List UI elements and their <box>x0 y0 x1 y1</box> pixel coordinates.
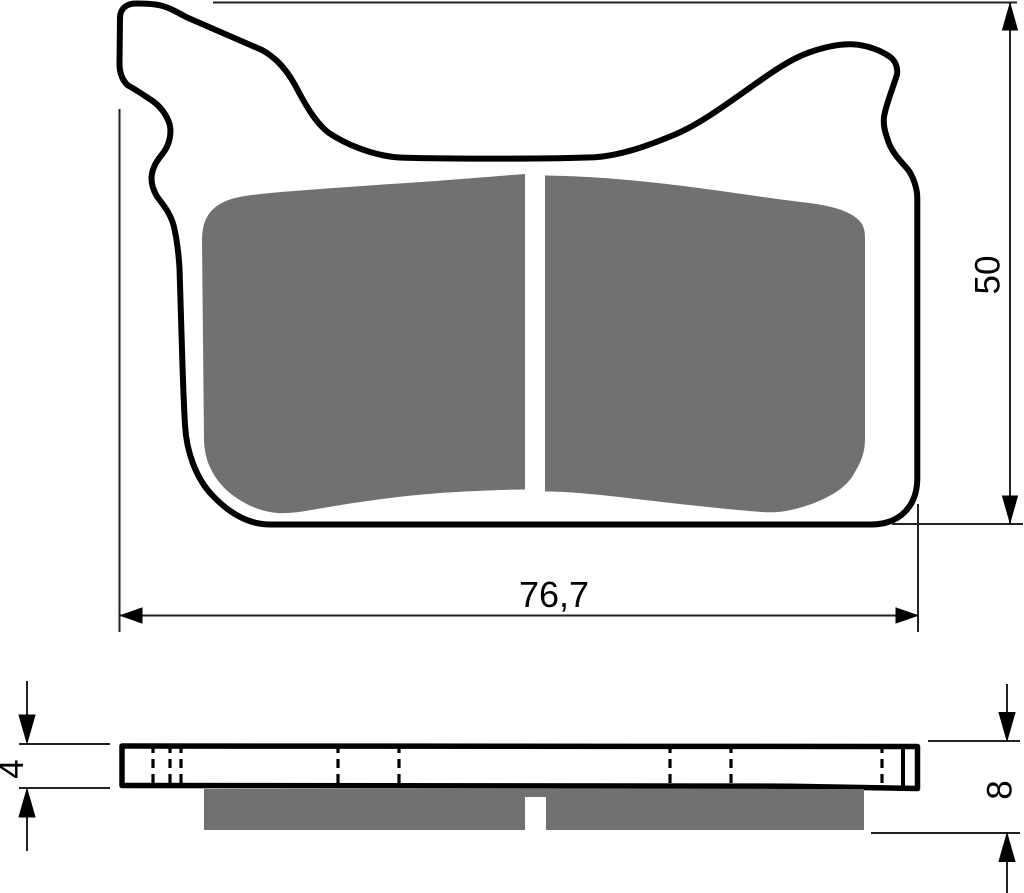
svg-text:50: 50 <box>968 256 1007 295</box>
svg-text:4: 4 <box>0 759 31 778</box>
svg-text:76,7: 76,7 <box>519 574 589 615</box>
svg-text:8: 8 <box>980 780 1019 799</box>
